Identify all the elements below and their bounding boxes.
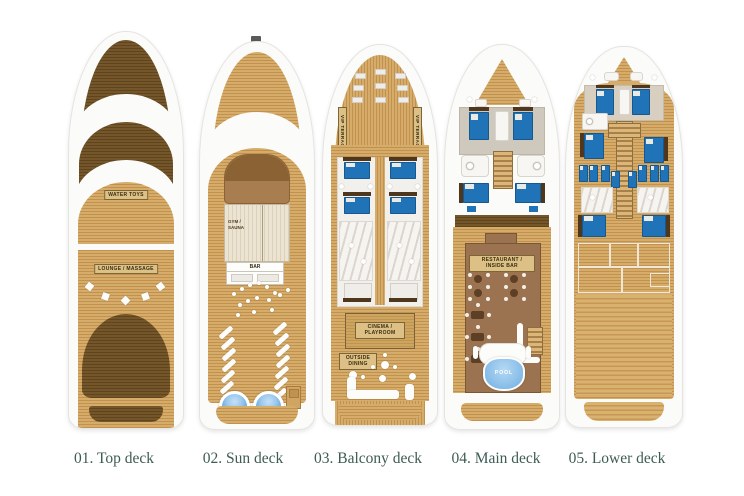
bed-icon — [644, 137, 664, 163]
headboard — [343, 157, 371, 161]
bed-icon — [596, 89, 614, 115]
partition-room — [650, 273, 670, 287]
swim-platform-pad — [338, 404, 422, 420]
chair-dot — [465, 335, 469, 339]
pool: POOL — [483, 357, 525, 391]
bed-icon — [515, 183, 541, 203]
bathroom — [461, 155, 489, 177]
nightstand-dot — [415, 184, 420, 189]
nightstand-dot — [368, 184, 373, 189]
headboard — [389, 192, 417, 196]
chair-dot — [257, 281, 261, 285]
chair-dot — [476, 303, 480, 307]
stairs — [493, 151, 513, 189]
sunpad-icon — [397, 85, 408, 91]
headboard — [666, 215, 670, 237]
side-table — [467, 206, 476, 212]
twin-bed-icon — [628, 171, 637, 188]
caption-main-deck: 04. Main deck — [451, 450, 540, 468]
engine-room-partitions — [576, 243, 672, 293]
deckhouse-roof-top — [225, 155, 289, 181]
sunpad-icon — [353, 85, 364, 91]
cabin-suite — [387, 221, 421, 281]
chair-dot — [487, 313, 491, 317]
sink-dot — [586, 118, 593, 125]
bathroom-fixture — [630, 72, 643, 81]
chair-dot — [361, 375, 365, 379]
bed-icon — [642, 215, 666, 237]
deck-lower-hull — [565, 46, 683, 428]
headboard — [596, 85, 614, 88]
fixture-dot — [467, 97, 472, 102]
cabin-suite — [637, 187, 669, 213]
closet — [495, 111, 509, 141]
nightstand-dot — [387, 184, 392, 189]
dining-table-dot — [381, 361, 389, 369]
bed-icon — [390, 197, 416, 214]
chair-dot — [522, 285, 526, 289]
caption-balcony-deck: 03. Balcony deck — [314, 450, 422, 468]
headboard — [389, 298, 417, 302]
chair-dot — [252, 310, 256, 314]
fixture-dot — [648, 195, 653, 200]
table-icon — [471, 333, 484, 341]
table-icon — [510, 289, 518, 297]
bed-icon — [632, 89, 650, 115]
chair-dot — [255, 296, 259, 300]
chair-dot — [504, 297, 508, 301]
partition-room — [638, 243, 670, 267]
twin-bed-icon — [589, 165, 598, 182]
gym-sauna-label: GYM / SAUNA — [228, 219, 256, 231]
twin-bed-icon — [638, 165, 647, 182]
deck-top-hull: WATER TOYS LOUNGE / MASSAGE — [68, 31, 184, 429]
sink-dot — [533, 162, 541, 170]
restaurant-inside-bar-label: RESTAURANT / INSIDE BAR — [469, 255, 535, 272]
sofa-icon — [405, 384, 414, 400]
chair-dot — [246, 299, 250, 303]
fixture-dot — [397, 243, 402, 248]
stern-plank-deck — [576, 295, 672, 395]
chair-dot — [286, 288, 290, 292]
deck-divider — [74, 244, 178, 250]
cinema-playroom-label: CINEMA / PLAYROOM — [355, 322, 405, 339]
sunpad-icon — [398, 97, 409, 103]
chair-dot — [267, 298, 271, 302]
headboard — [513, 107, 533, 111]
chair-dot — [248, 283, 252, 287]
swim-platform-pad — [584, 402, 664, 421]
fixture-dot — [590, 75, 595, 80]
corridor-landing — [608, 123, 641, 138]
chair-dot — [486, 297, 490, 301]
partition-room — [610, 243, 638, 267]
fixture-dot — [361, 259, 366, 264]
side-table — [529, 206, 538, 212]
chair-dot — [238, 303, 242, 307]
chair-dot — [393, 365, 397, 369]
corridor-dark-band — [455, 215, 549, 227]
chair-dot — [486, 273, 490, 277]
twin-bed-icon — [601, 165, 610, 182]
chair-dot — [522, 297, 526, 301]
chair-dot — [522, 273, 526, 277]
headboard — [389, 157, 417, 161]
dining-table-dot — [379, 375, 386, 382]
pool-label: POOL — [485, 370, 523, 376]
fixture-dot — [409, 259, 414, 264]
bar-counter: BAR — [226, 262, 284, 285]
chair-dot — [468, 273, 472, 277]
cabin-corridor — [375, 157, 385, 305]
headboard — [664, 137, 668, 161]
chair-dot — [278, 293, 282, 297]
chair-dot — [232, 292, 236, 296]
headboard — [343, 192, 371, 196]
caption-lower-deck: 05. Lower deck — [569, 450, 666, 468]
twin-bed-icon — [579, 165, 588, 182]
sunpad-icon — [375, 69, 386, 75]
chair-dot — [240, 287, 244, 291]
caption-sun-deck: 02. Sun deck — [203, 450, 284, 468]
table-icon — [474, 289, 482, 297]
sunpad-icon — [355, 73, 366, 79]
bathroom — [582, 113, 608, 130]
chair-dot — [468, 297, 472, 301]
bathroom-fixture — [519, 99, 531, 107]
cabin-suite — [339, 221, 373, 281]
closet — [619, 89, 630, 115]
bar-fixture — [231, 274, 253, 282]
headboard — [469, 107, 489, 111]
pool-handle — [526, 346, 531, 359]
deck-balcony-hull: VIP TERRACE VIP TERRACE CINEMA / PLAYROO… — [322, 44, 438, 426]
sunpad-icon — [375, 97, 386, 103]
partition-room — [578, 267, 622, 293]
headboard — [541, 183, 545, 203]
swim-platform-pad — [89, 406, 163, 422]
chair-dot — [476, 325, 480, 329]
table-icon — [510, 275, 518, 283]
yacht-deck-plans: WATER TOYS LOUNGE / MASSAGE GYM / SAUNA … — [0, 0, 744, 496]
bed-icon — [582, 215, 606, 237]
fixture-dot — [652, 75, 657, 80]
chair-dot — [270, 308, 274, 312]
bed-icon — [390, 162, 416, 179]
chair-dot — [487, 335, 491, 339]
deckhouse-roof — [224, 154, 290, 204]
table-icon — [471, 311, 484, 319]
fixture-dot — [349, 243, 354, 248]
chair-dot — [465, 313, 469, 317]
water-toys-label: WATER TOYS — [104, 190, 148, 200]
cinema-room: CINEMA / PLAYROOM — [345, 313, 415, 349]
chair-dot — [504, 273, 508, 277]
chair-dot — [486, 285, 490, 289]
bed-icon — [584, 133, 604, 159]
headboard — [343, 298, 371, 302]
fixture-dot — [590, 195, 595, 200]
chair-dot — [236, 313, 240, 317]
bed-icon — [513, 112, 533, 140]
chair-dot — [465, 357, 469, 361]
swim-platform-pad — [216, 406, 298, 424]
chair-dot — [468, 285, 472, 289]
caption-top-deck: 01. Top deck — [74, 450, 154, 468]
twin-bed-icon — [650, 165, 659, 182]
bathroom — [517, 155, 545, 177]
sink-dot — [466, 162, 474, 170]
fixture-dot — [532, 97, 537, 102]
headboard — [632, 85, 650, 88]
bed-icon — [463, 183, 489, 203]
chair-dot — [383, 353, 387, 357]
sunpad-icon — [395, 73, 406, 79]
sunpad-icon — [375, 83, 386, 89]
pool-handle — [473, 346, 478, 359]
chair-dot — [273, 291, 277, 295]
cabin-suite — [581, 187, 613, 213]
gym-sauna-room: GYM / SAUNA — [224, 204, 290, 262]
table-icon — [474, 275, 482, 283]
deck-sun-hull: GYM / SAUNA BAR — [199, 41, 315, 430]
swim-platform-pad — [461, 403, 543, 421]
twin-bed-icon — [660, 165, 669, 182]
sofa-icon — [347, 390, 399, 399]
bathroom-fixture — [475, 99, 487, 107]
bed-icon — [344, 162, 370, 179]
deck-main-hull: RESTAURANT / INSIDE BAR — [444, 44, 560, 430]
dining-table-dot — [409, 373, 416, 380]
bar-label: BAR — [227, 263, 283, 272]
room-divider — [262, 205, 263, 261]
twin-bed-icon — [611, 171, 620, 188]
partition-room — [578, 243, 610, 267]
lounge-massage-label: LOUNGE / MASSAGE — [94, 264, 158, 274]
locker-lid — [289, 389, 299, 398]
chair-dot — [371, 365, 375, 369]
chair-dot — [504, 285, 508, 289]
bathroom-fixture — [604, 72, 619, 81]
chair-dot — [265, 285, 269, 289]
bed-icon — [344, 197, 370, 214]
bed-icon — [469, 112, 489, 140]
sunpad-icon — [352, 97, 363, 103]
nightstand-dot — [339, 184, 344, 189]
